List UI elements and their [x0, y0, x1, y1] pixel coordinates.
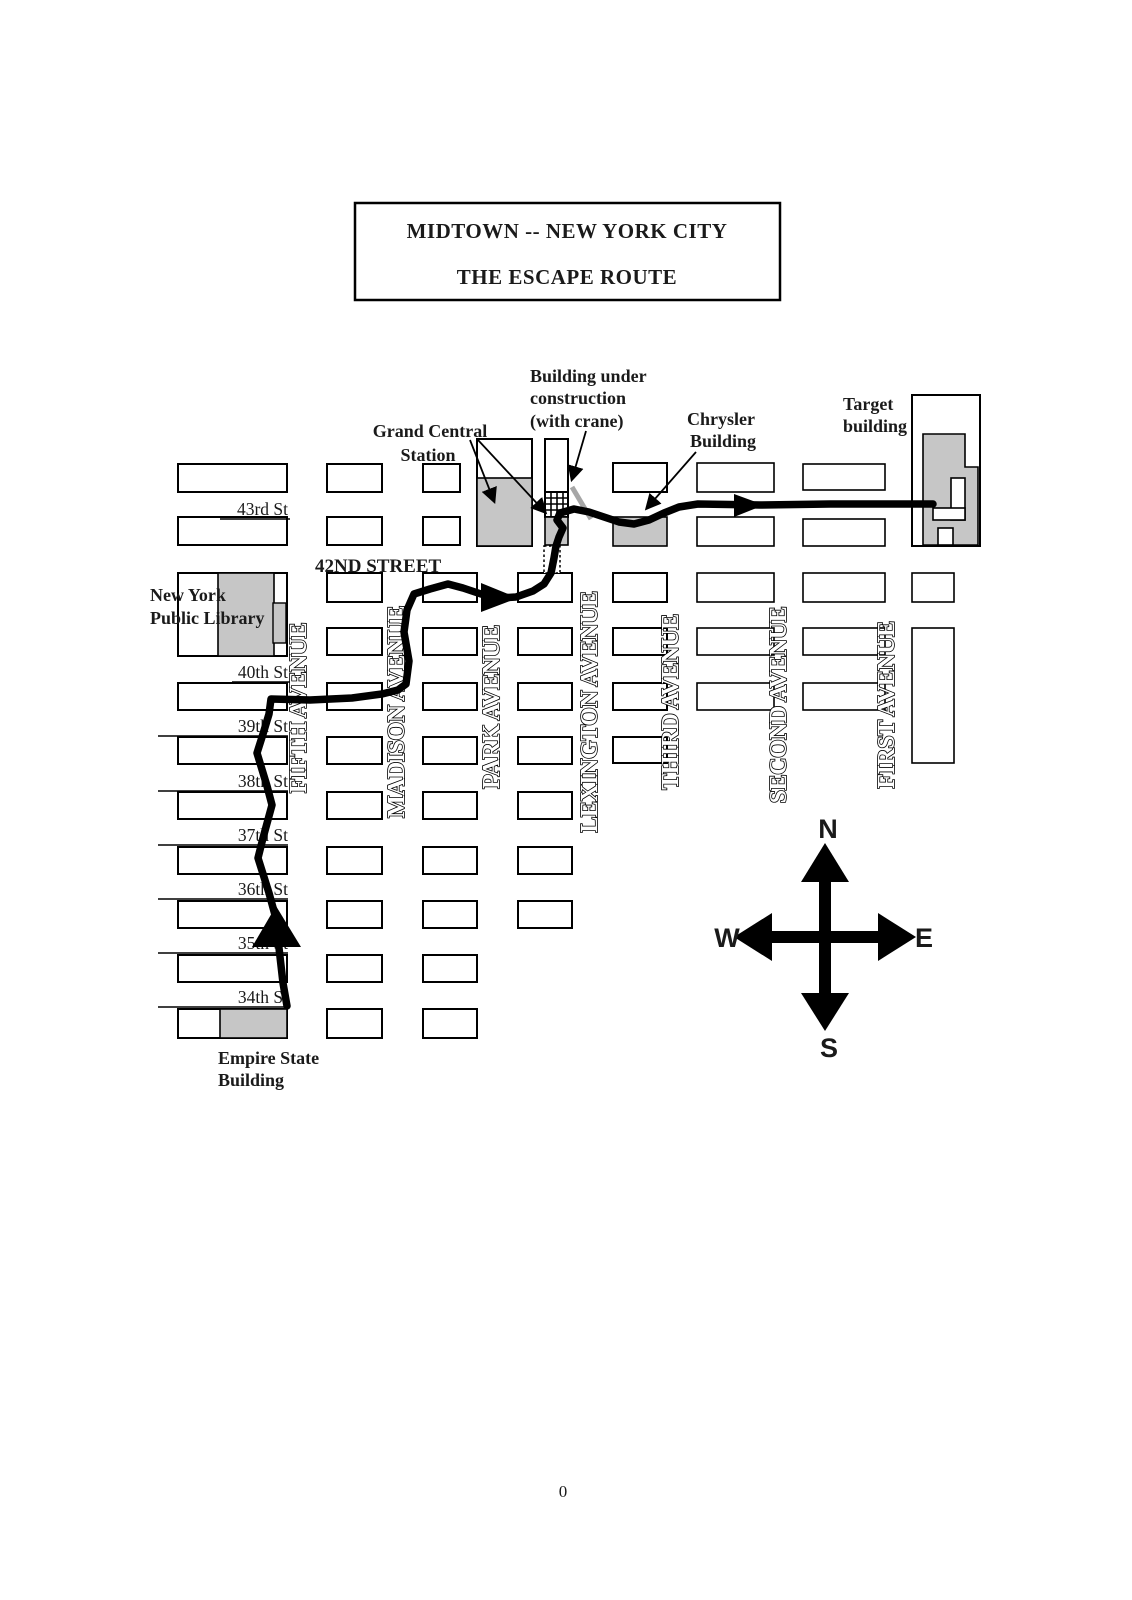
- compass-label-north: N: [818, 814, 838, 844]
- route-arrow-east-42nd: [481, 583, 518, 612]
- city-block: [803, 683, 885, 710]
- avenue-label-first: FIRST AVENUE: [874, 621, 900, 788]
- city-block: [327, 901, 382, 928]
- blocks-col-madison-park: [423, 464, 477, 1038]
- compass-arrow-east: [878, 913, 916, 961]
- city-block: [423, 792, 477, 819]
- city-block: [178, 737, 287, 764]
- city-block: [178, 955, 287, 982]
- city-block: [423, 847, 477, 874]
- grand-central-label-2: Station: [400, 445, 455, 465]
- city-block: [613, 573, 667, 602]
- city-block: [423, 737, 477, 764]
- map-title: MIDTOWN -- NEW YORK CITY: [407, 219, 728, 243]
- construction-label-3: (with crane): [530, 411, 623, 432]
- city-block: [327, 517, 382, 545]
- city-block: [697, 628, 774, 655]
- target-building-block: [912, 395, 980, 546]
- city-block: [327, 737, 382, 764]
- library-label-1: New York: [150, 585, 226, 605]
- city-block: [178, 464, 287, 492]
- map-page: MIDTOWN -- NEW YORK CITY THE ESCAPE ROUT…: [0, 0, 1132, 1600]
- target-label-2: building: [843, 416, 907, 436]
- blocks-col-east-first: [912, 573, 954, 763]
- city-block: [518, 901, 572, 928]
- city-block: [518, 737, 572, 764]
- city-block: [518, 847, 572, 874]
- compass-label-south: S: [820, 1033, 838, 1063]
- city-block: [327, 464, 382, 492]
- city-block: [518, 683, 572, 710]
- construction-upper: [545, 439, 568, 492]
- empire-state-block: [178, 1009, 287, 1038]
- construction-label-1: Building under: [530, 366, 647, 386]
- city-block: [327, 847, 382, 874]
- city-block: [423, 1009, 477, 1038]
- street-label-42nd: 42ND STREET: [315, 556, 441, 577]
- city-block: [327, 792, 382, 819]
- city-block: [178, 847, 287, 874]
- esb-gray: [220, 1009, 287, 1038]
- page-number: 0: [559, 1482, 568, 1501]
- route-arrow-east-43rd: [734, 494, 764, 517]
- empire-state-label-2: Building: [218, 1070, 284, 1090]
- compass-label-west: W: [714, 923, 740, 953]
- compass-rose: N S W E: [714, 814, 933, 1063]
- target-building-notch: [938, 528, 953, 545]
- city-block: [423, 628, 477, 655]
- chrysler-label-2: Building: [690, 431, 756, 451]
- compass-arrow-south: [801, 993, 849, 1031]
- city-block: [423, 955, 477, 982]
- city-block: [423, 683, 477, 710]
- city-block: [518, 792, 572, 819]
- target-label-1: Target: [843, 394, 893, 414]
- city-block: [697, 573, 774, 602]
- empire-state-label-1: Empire State: [218, 1048, 319, 1068]
- city-block: [697, 463, 774, 492]
- city-block: [697, 517, 774, 546]
- compass-arrow-north: [801, 843, 849, 882]
- city-block: [613, 463, 667, 492]
- city-block: [423, 464, 460, 492]
- blocks-col-park-lex: [518, 573, 572, 928]
- avenue-label-park: PARK AVENUE: [479, 625, 505, 789]
- city-block: [803, 519, 885, 546]
- compass-label-east: E: [915, 923, 933, 953]
- city-block: [697, 683, 774, 710]
- avenue-label-fifth: FIFTH AVENUE: [286, 623, 312, 793]
- city-block: [912, 573, 954, 602]
- city-block: [423, 517, 460, 545]
- city-block: [327, 573, 382, 602]
- construction-label-2: construction: [530, 388, 626, 408]
- street-label-40th: 40th St: [238, 662, 288, 682]
- grand-central-station-block: [477, 439, 532, 546]
- grand-central-label-1: Grand Central: [373, 421, 488, 441]
- library-label-2: Public Library: [150, 608, 265, 628]
- city-block-tall: [912, 628, 954, 763]
- midtown-map: MIDTOWN -- NEW YORK CITY THE ESCAPE ROUT…: [0, 0, 1132, 1600]
- nypl-gray-bump: [273, 603, 286, 643]
- city-block: [327, 955, 382, 982]
- city-block: [178, 517, 287, 545]
- blocks-col-fifth-madison: [327, 464, 382, 1038]
- city-block: [518, 628, 572, 655]
- avenue-label-second: SECOND AVENUE: [766, 607, 792, 803]
- avenue-label-third: THIRD AVENUE: [658, 614, 684, 790]
- chrysler-label-1: Chrysler: [687, 409, 755, 429]
- city-block: [423, 901, 477, 928]
- street-label-43rd: 43rd St: [237, 499, 288, 519]
- map-subtitle: THE ESCAPE ROUTE: [457, 265, 677, 289]
- city-block: [327, 1009, 382, 1038]
- title-box: MIDTOWN -- NEW YORK CITY THE ESCAPE ROUT…: [355, 203, 780, 300]
- city-block: [327, 628, 382, 655]
- avenue-label-lexington: LEXINGTON AVENUE: [577, 591, 603, 832]
- city-block: [803, 628, 885, 655]
- city-block: [803, 464, 885, 490]
- construction-pointer-arrow: [572, 431, 586, 479]
- city-block: [803, 573, 885, 602]
- target-building-notch: [933, 508, 965, 520]
